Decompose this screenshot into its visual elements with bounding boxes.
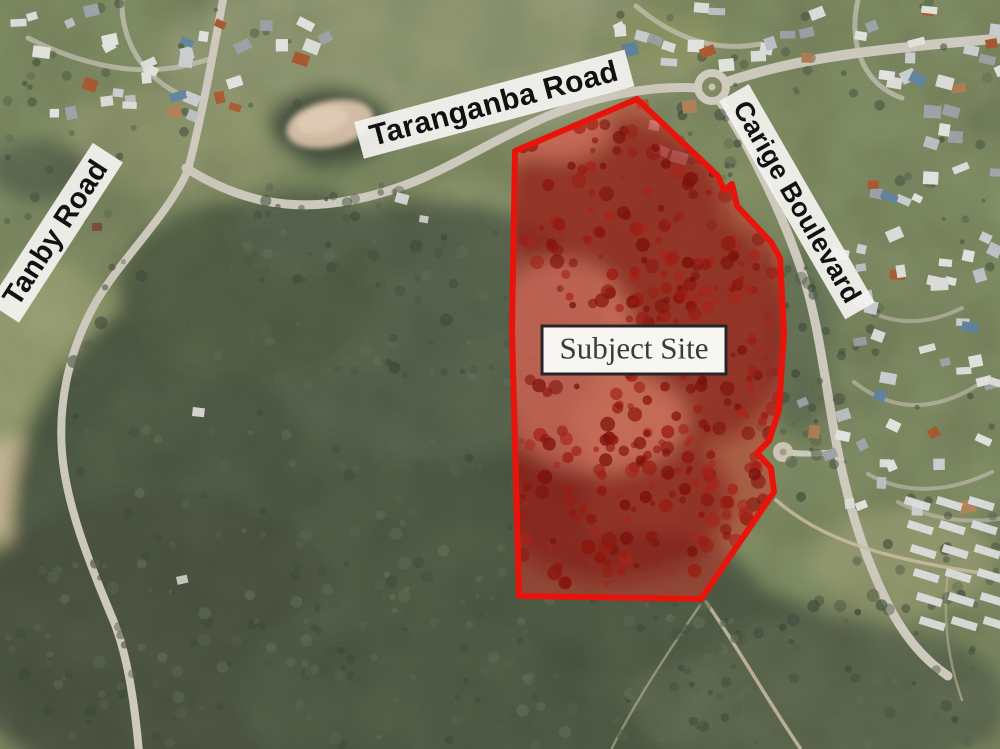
subject-site-label: Subject Site xyxy=(541,325,728,376)
aerial-map: Taranganba Road Tanby Road Carige Boulev… xyxy=(0,0,1000,749)
